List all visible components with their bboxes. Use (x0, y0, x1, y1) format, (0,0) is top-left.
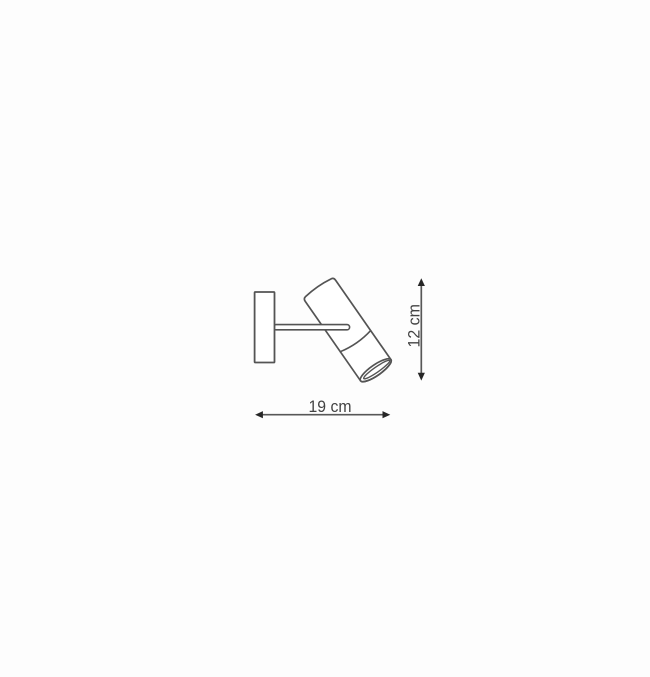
svg-text:12 cm: 12 cm (405, 304, 423, 348)
svg-text:19 cm: 19 cm (309, 398, 352, 416)
